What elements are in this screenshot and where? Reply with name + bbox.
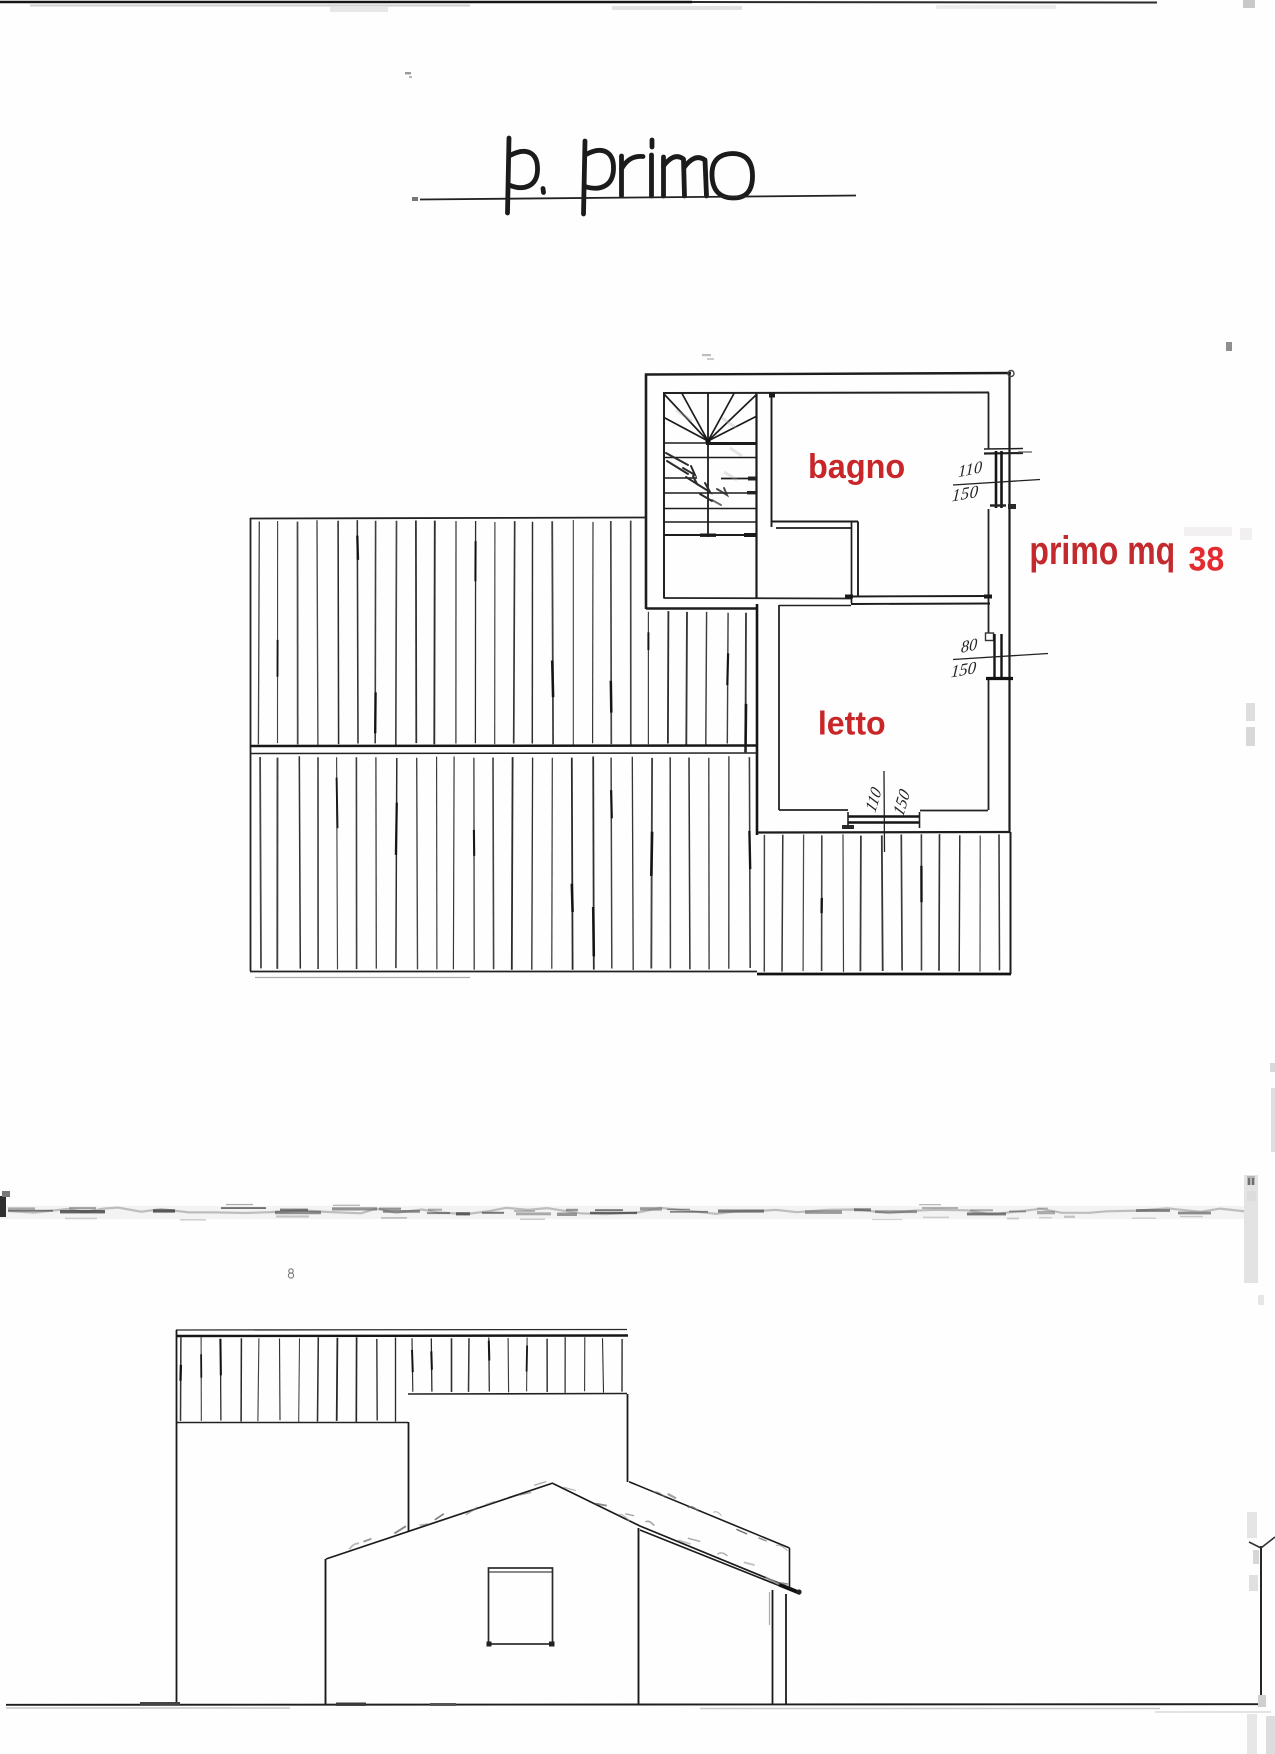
svg-text:letto: letto	[818, 704, 886, 742]
svg-text:bagno: bagno	[808, 448, 905, 486]
svg-text:80: 80	[961, 634, 978, 657]
svg-text:38: 38	[1189, 541, 1225, 579]
svg-text:primo mq: primo mq	[1029, 527, 1175, 572]
